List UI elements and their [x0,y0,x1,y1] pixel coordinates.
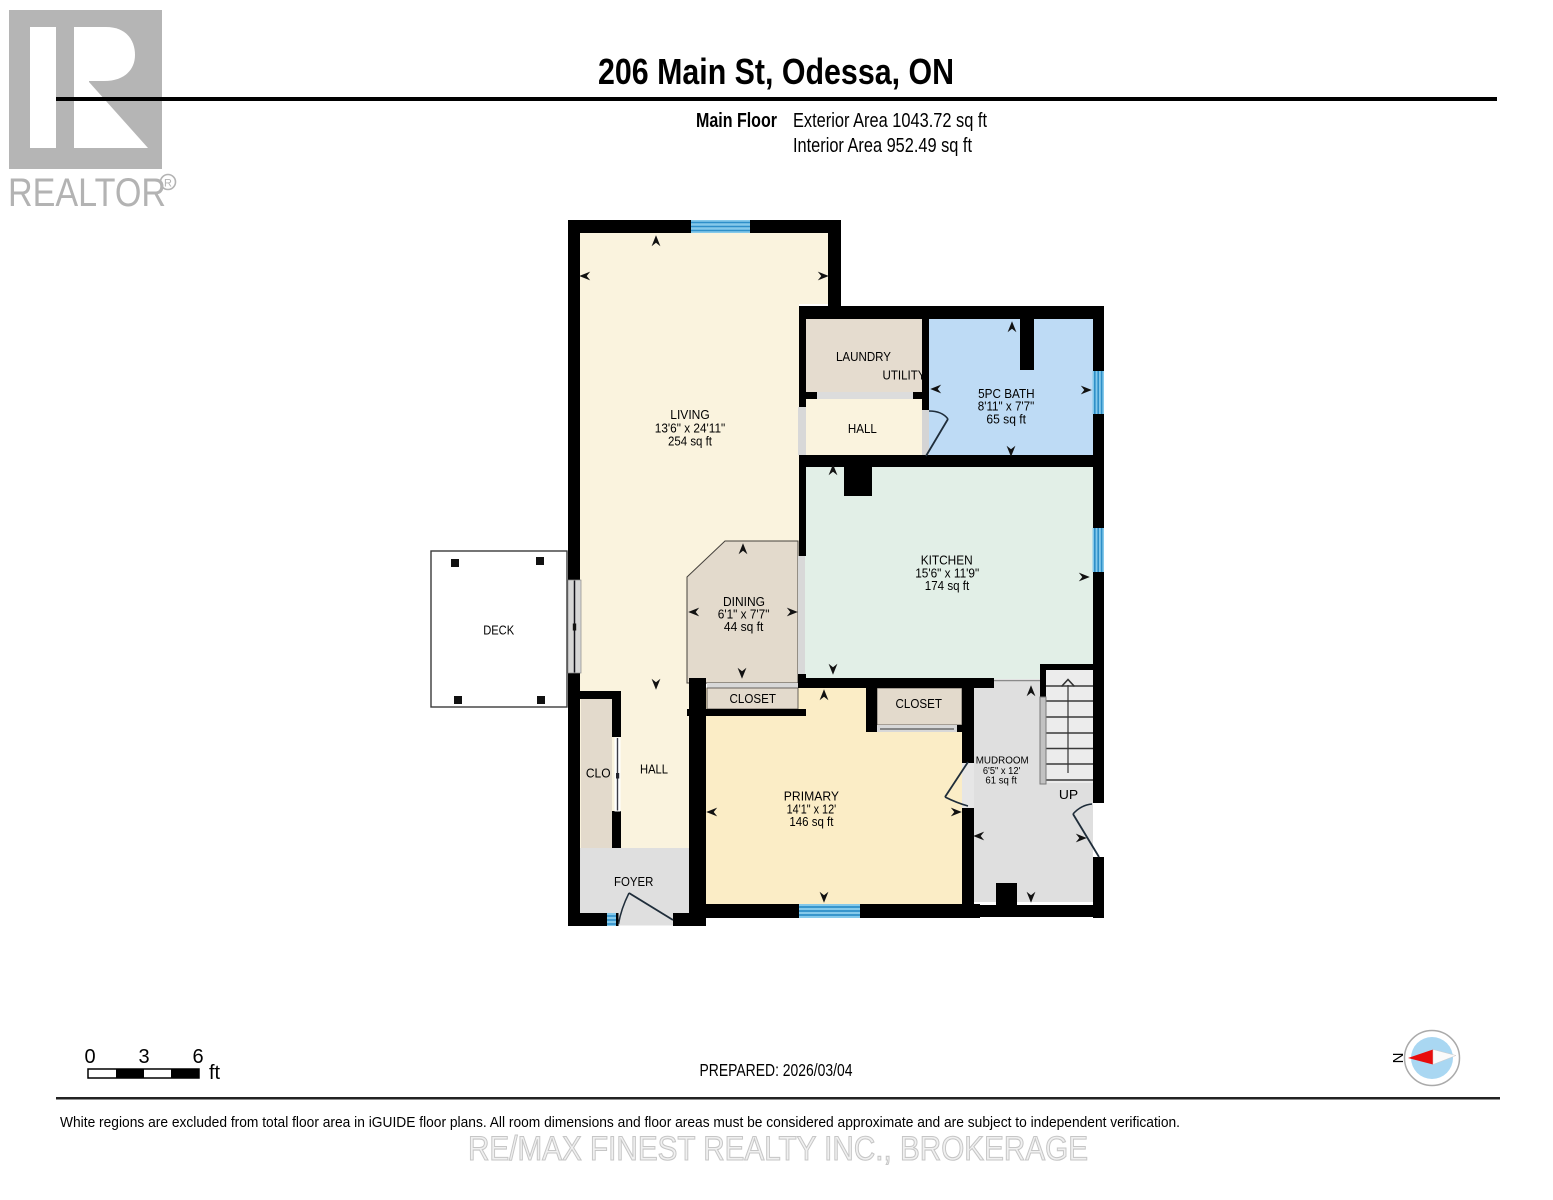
svg-text:PREPARED: 2026/03/04: PREPARED: 2026/03/04 [700,1060,853,1080]
svg-text:FOYER: FOYER [614,874,653,889]
svg-text:CLOSET: CLOSET [730,691,776,706]
svg-text:206 Main St, Odessa, ON: 206 Main St, Odessa, ON [598,51,954,92]
svg-text:174 sq ft: 174 sq ft [925,578,970,593]
svg-text:UTILITY: UTILITY [883,368,926,383]
svg-text:REALTOR: REALTOR [8,171,166,215]
svg-text:6: 6 [192,1046,203,1068]
svg-text:R: R [164,178,172,190]
svg-text:3: 3 [138,1046,149,1068]
svg-text:Exterior Area 1043.72 sq ft: Exterior Area 1043.72 sq ft [793,110,987,132]
svg-text:Main Floor: Main Floor [696,110,777,132]
svg-text:0: 0 [84,1046,95,1068]
svg-text:44 sq ft: 44 sq ft [724,619,764,634]
svg-text:CLO: CLO [586,766,611,781]
svg-text:ft: ft [209,1062,221,1084]
svg-text:LAUNDRY: LAUNDRY [836,349,891,364]
svg-text:N: N [1390,1053,1407,1064]
svg-text:HALL: HALL [640,762,668,777]
svg-text:MUDROOM: MUDROOM [976,755,1029,767]
svg-text:RE/MAX FINEST REALTY INC., BRO: RE/MAX FINEST REALTY INC., BROKERAGE [468,1130,1088,1168]
svg-text:White regions are excluded fro: White regions are excluded from total fl… [60,1115,1180,1131]
svg-text:HALL: HALL [848,421,877,436]
svg-text:254 sq ft: 254 sq ft [668,434,712,449]
svg-text:DECK: DECK [483,623,514,638]
svg-text:146 sq ft: 146 sq ft [789,814,833,829]
svg-text:Interior Area 952.49 sq ft: Interior Area 952.49 sq ft [793,135,972,157]
svg-text:65 sq ft: 65 sq ft [986,411,1026,426]
svg-text:61 sq ft: 61 sq ft [985,776,1017,787]
svg-text:UP: UP [1059,788,1078,802]
svg-text:CLOSET: CLOSET [896,696,942,711]
